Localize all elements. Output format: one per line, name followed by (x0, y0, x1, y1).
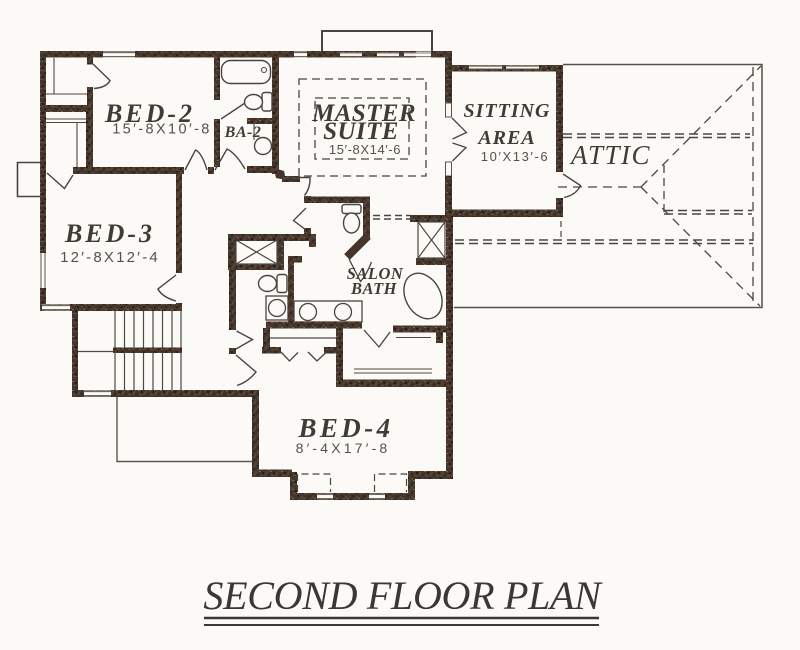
svg-text:BA-2: BA-2 (224, 124, 262, 141)
svg-text:AREA: AREA (476, 127, 535, 149)
svg-text:15′-8X14′-6: 15′-8X14′-6 (329, 142, 401, 157)
svg-text:SECOND FLOOR PLAN: SECOND FLOOR PLAN (203, 573, 603, 618)
svg-text:BED-3: BED-3 (64, 219, 155, 248)
svg-text:15′-8X10′-8: 15′-8X10′-8 (112, 122, 212, 138)
svg-text:SUITE: SUITE (323, 118, 399, 145)
svg-text:10′X13′-6: 10′X13′-6 (481, 149, 549, 164)
svg-text:SITTING: SITTING (463, 100, 550, 122)
svg-text:12′-8X12′-4: 12′-8X12′-4 (60, 249, 160, 266)
svg-text:ATTIC: ATTIC (569, 140, 651, 170)
svg-text:8′-4X17′-8: 8′-4X17′-8 (296, 440, 391, 456)
svg-text:BED-4: BED-4 (297, 413, 393, 443)
svg-text:BATH: BATH (350, 279, 398, 298)
